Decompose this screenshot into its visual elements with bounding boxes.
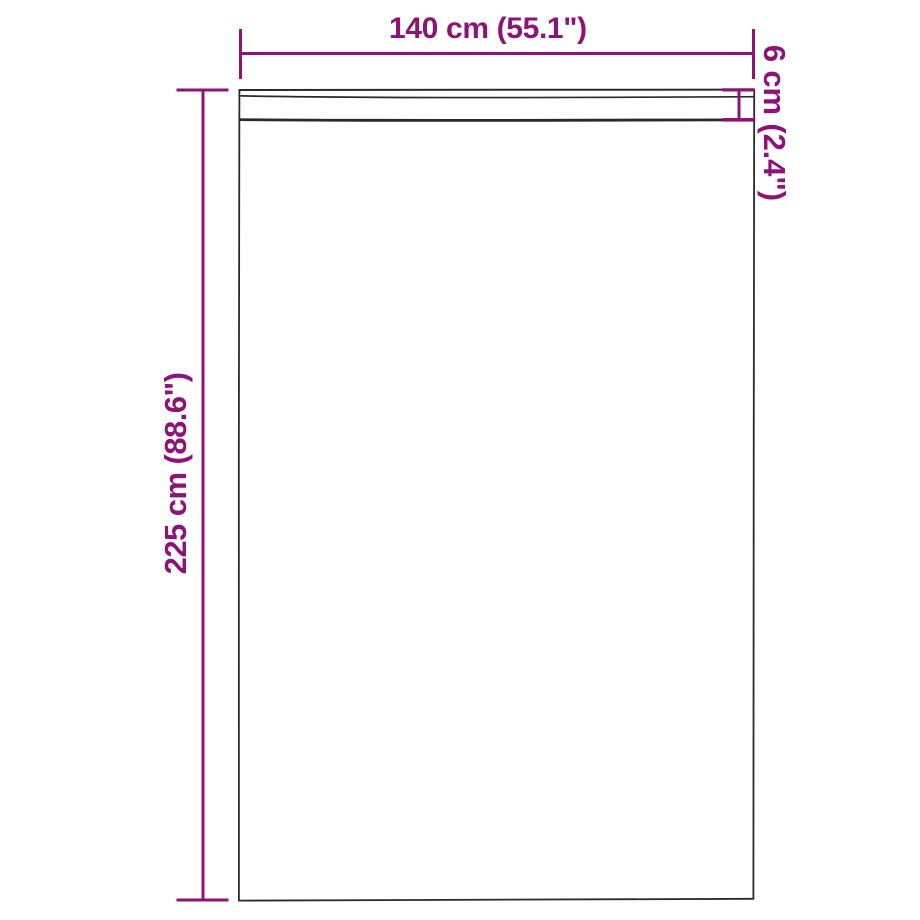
svg-text:225 cm (88.6"): 225 cm (88.6") (158, 373, 193, 575)
svg-text:140 cm (55.1"): 140 cm (55.1") (389, 12, 587, 45)
svg-text:6 cm (2.4"): 6 cm (2.4") (757, 45, 792, 201)
